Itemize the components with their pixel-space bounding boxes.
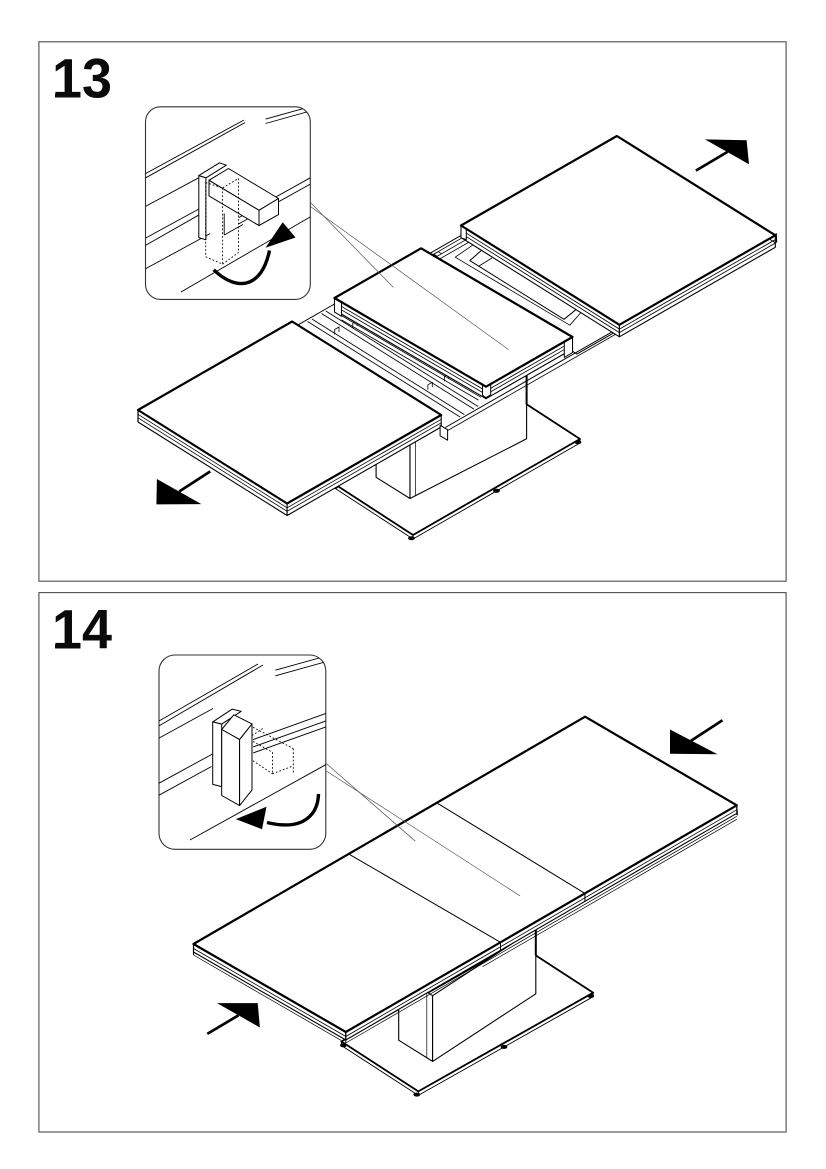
svg-text:13: 13 [52, 47, 112, 110]
svg-text:14: 14 [52, 597, 112, 660]
